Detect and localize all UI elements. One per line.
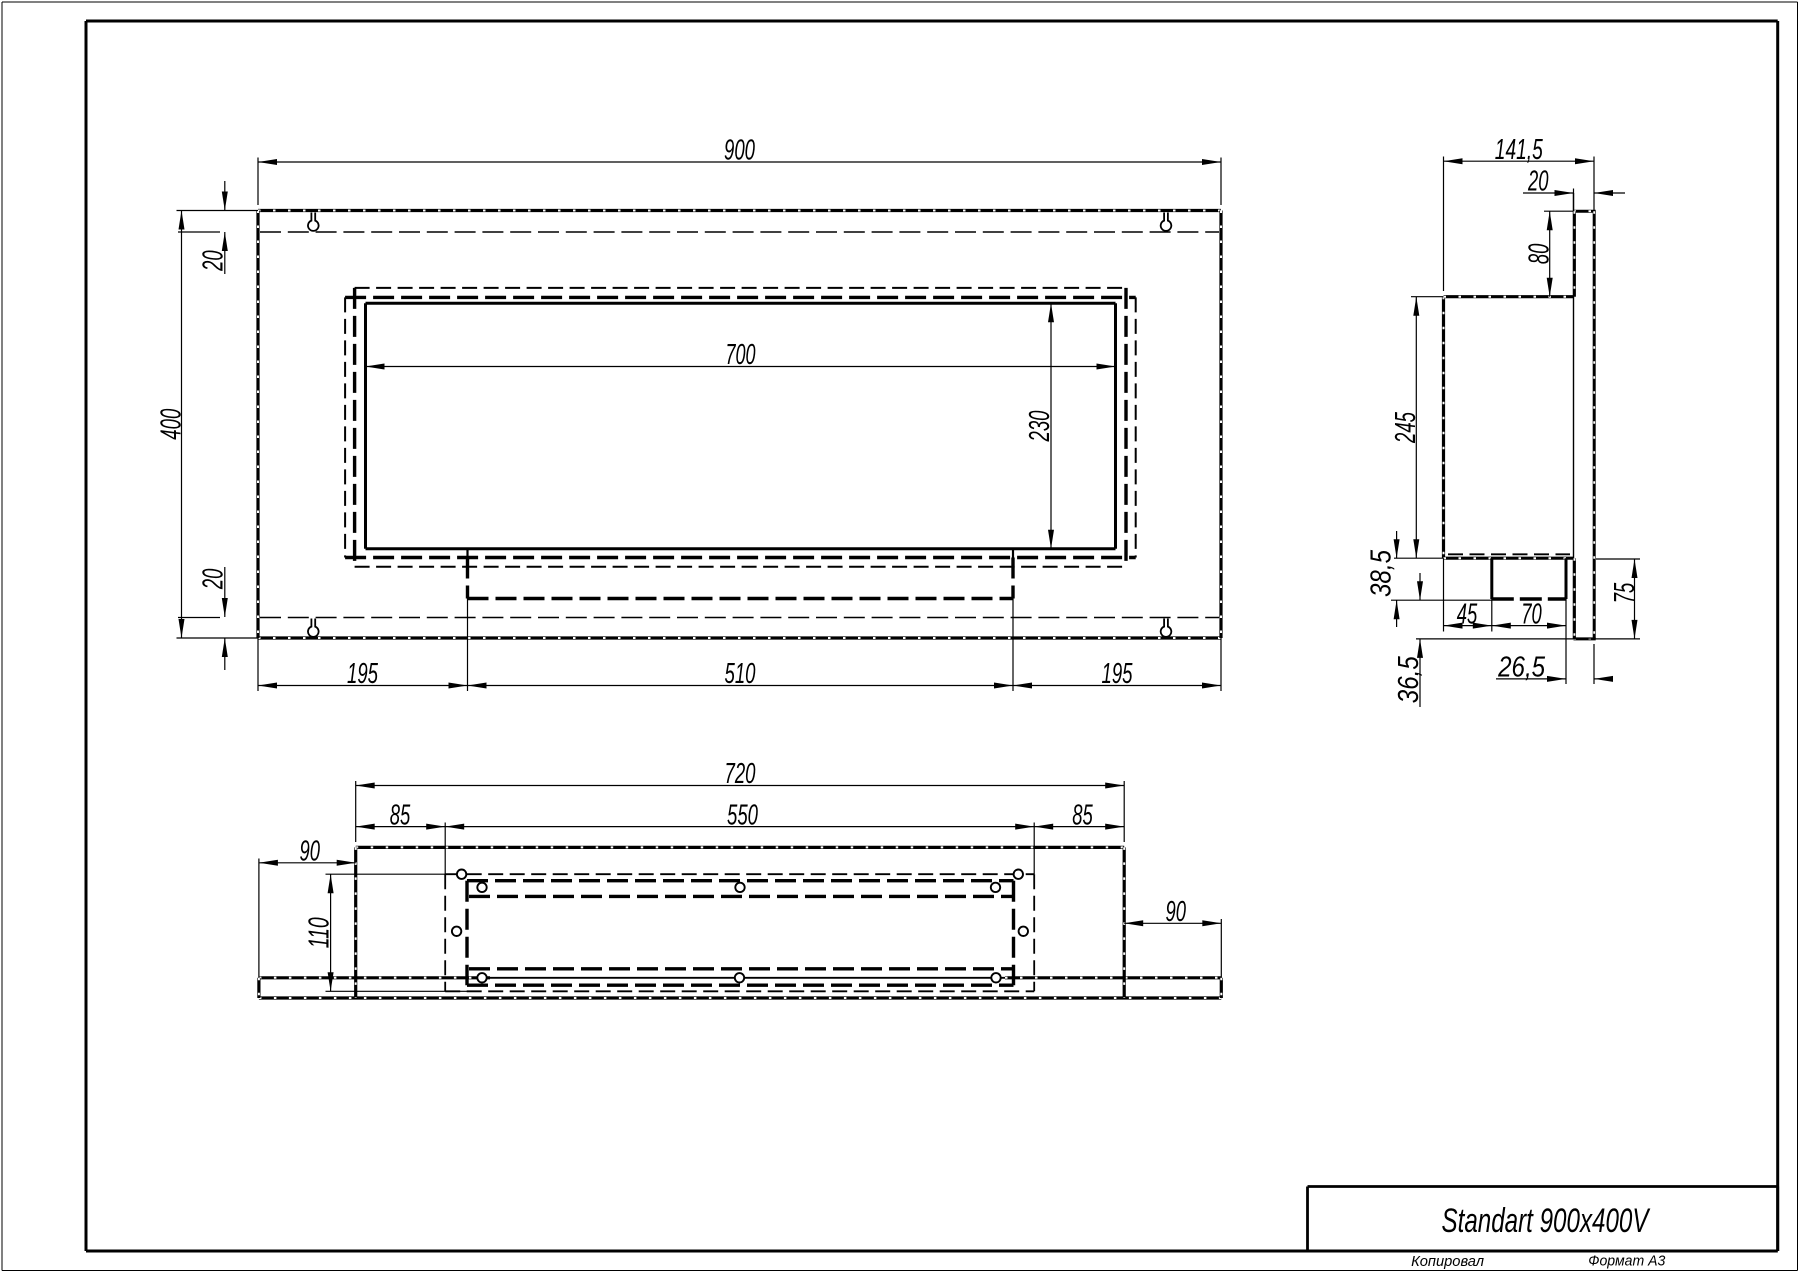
svg-text:85: 85 — [390, 799, 411, 831]
svg-text:45: 45 — [1457, 598, 1478, 630]
svg-text:36,5: 36,5 — [1393, 655, 1425, 703]
svg-text:900: 900 — [724, 135, 755, 167]
svg-text:75: 75 — [1609, 582, 1641, 603]
svg-text:700: 700 — [726, 339, 756, 371]
svg-text:26,5: 26,5 — [1497, 652, 1546, 684]
svg-text:110: 110 — [303, 917, 335, 948]
svg-text:720: 720 — [725, 758, 756, 790]
svg-text:141,5: 141,5 — [1495, 134, 1544, 166]
svg-text:245: 245 — [1390, 411, 1422, 443]
svg-text:195: 195 — [1102, 658, 1134, 690]
svg-text:80: 80 — [1523, 244, 1555, 265]
svg-text:38,5: 38,5 — [1365, 549, 1397, 597]
svg-text:20: 20 — [198, 250, 230, 271]
svg-text:195: 195 — [347, 658, 379, 690]
svg-text:Формат А3: Формат А3 — [1588, 1253, 1666, 1270]
svg-text:550: 550 — [727, 799, 758, 831]
svg-text:Standart 900x400V: Standart 900x400V — [1442, 1202, 1651, 1240]
svg-text:230: 230 — [1024, 411, 1056, 443]
svg-text:70: 70 — [1521, 598, 1542, 630]
svg-text:20: 20 — [198, 569, 230, 590]
svg-text:Копировал: Копировал — [1411, 1253, 1485, 1270]
svg-text:90: 90 — [300, 836, 321, 868]
svg-text:400: 400 — [156, 409, 188, 440]
svg-text:510: 510 — [725, 658, 756, 690]
svg-text:90: 90 — [1166, 896, 1187, 928]
svg-text:85: 85 — [1072, 799, 1093, 831]
svg-text:20: 20 — [1527, 166, 1548, 198]
